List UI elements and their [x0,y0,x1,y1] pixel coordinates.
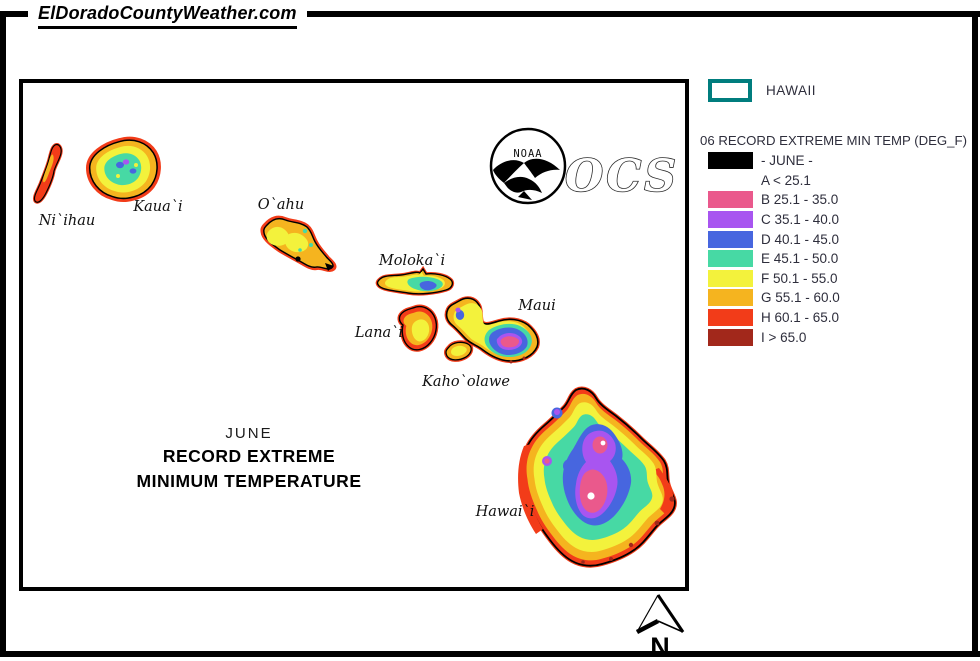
island-label-oahu: O`ahu [258,197,304,213]
island-lanai [399,307,436,350]
island-oahu [262,218,334,271]
noaa-logo: NOAA [491,129,565,203]
island-niihau [34,145,61,203]
page-border-bottom [0,651,980,657]
legend-row-a: A < 25.1 [700,171,975,191]
page-border-left [0,11,6,657]
legend-swatch-b [708,191,753,208]
north-arrow: N [625,590,700,660]
legend-swatch-d [708,231,753,248]
hawaii-region-label: HAWAII [766,83,816,98]
island-label-maui: Maui [517,298,555,314]
map-title-line3: MINIMUM TEMPERATURE [137,471,362,491]
island-label-hawaii: Hawai`i [475,504,535,520]
legend-region-row: HAWAII [700,79,975,102]
legend-label-a: A < 25.1 [761,173,811,188]
island-label-molokai: Moloka`i [378,253,445,269]
legend-row-g: G 55.1 - 60.0 [700,288,975,308]
legend-swatch-g [708,289,753,306]
legend-swatch-c [708,211,753,228]
legend-label-c: C 35.1 - 40.0 [761,212,839,227]
hawaii-region-box [708,79,752,102]
legend-row-h: H 60.1 - 65.0 [700,308,975,328]
legend-rows: - JUNE - A < 25.1 B 25.1 - 35.0 C 35.1 -… [700,151,975,347]
site-title-wrap: ElDoradoCountyWeather.com [28,0,307,31]
legend-row-e: E 45.1 - 50.0 [700,249,975,269]
legend-row-d: D 40.1 - 45.0 [700,229,975,249]
island-kauai [88,139,159,200]
hawaii-map: Ni`ihau Kaua`i O`ahu Moloka`i Lana`i Mau… [19,79,689,591]
legend-label-d: D 40.1 - 45.0 [761,232,839,247]
island-hawaii [518,389,675,566]
legend-label-b: B 25.1 - 35.0 [761,192,838,207]
legend-label-f: F 50.1 - 55.0 [761,271,838,286]
legend-row-i: I > 65.0 [700,327,975,347]
legend-swatch-h [708,309,753,326]
legend-label-e: E 45.1 - 50.0 [761,251,838,266]
island-label-niihau: Ni`ihau [38,213,96,229]
noaa-logo-text: NOAA [513,148,542,160]
legend-label-h: H 60.1 - 65.0 [761,310,839,325]
legend-swatch-i [708,329,753,346]
legend-row-c: C 35.1 - 40.0 [700,210,975,230]
island-label-kauai: Kaua`i [132,199,182,215]
legend: HAWAII 06 RECORD EXTREME MIN TEMP (DEG_F… [700,79,975,347]
site-title[interactable]: ElDoradoCountyWeather.com [38,3,297,29]
legend-swatch-e [708,250,753,267]
legend-swatch-june [708,152,753,169]
map-title-line2: RECORD EXTREME [163,446,335,466]
legend-label-i: I > 65.0 [761,330,806,345]
legend-swatch-f [708,270,753,287]
island-label-kahoolawe: Kaho`olawe [421,374,510,390]
map-title-line1: JUNE [225,425,272,442]
ocs-logo: OCS [565,151,679,202]
legend-row-b: B 25.1 - 35.0 [700,190,975,210]
legend-label-g: G 55.1 - 60.0 [761,290,840,305]
legend-label-june: - JUNE - [761,153,813,168]
map-title: JUNE RECORD EXTREME MINIMUM TEMPERATURE [137,425,362,491]
island-label-lanai: Lana`i [354,325,403,341]
legend-heading: 06 RECORD EXTREME MIN TEMP (DEG_F) [700,133,975,148]
north-label: N [650,632,670,660]
legend-row-f: F 50.1 - 55.0 [700,269,975,289]
island-molokai [378,269,453,294]
legend-row-june: - JUNE - [700,151,975,171]
